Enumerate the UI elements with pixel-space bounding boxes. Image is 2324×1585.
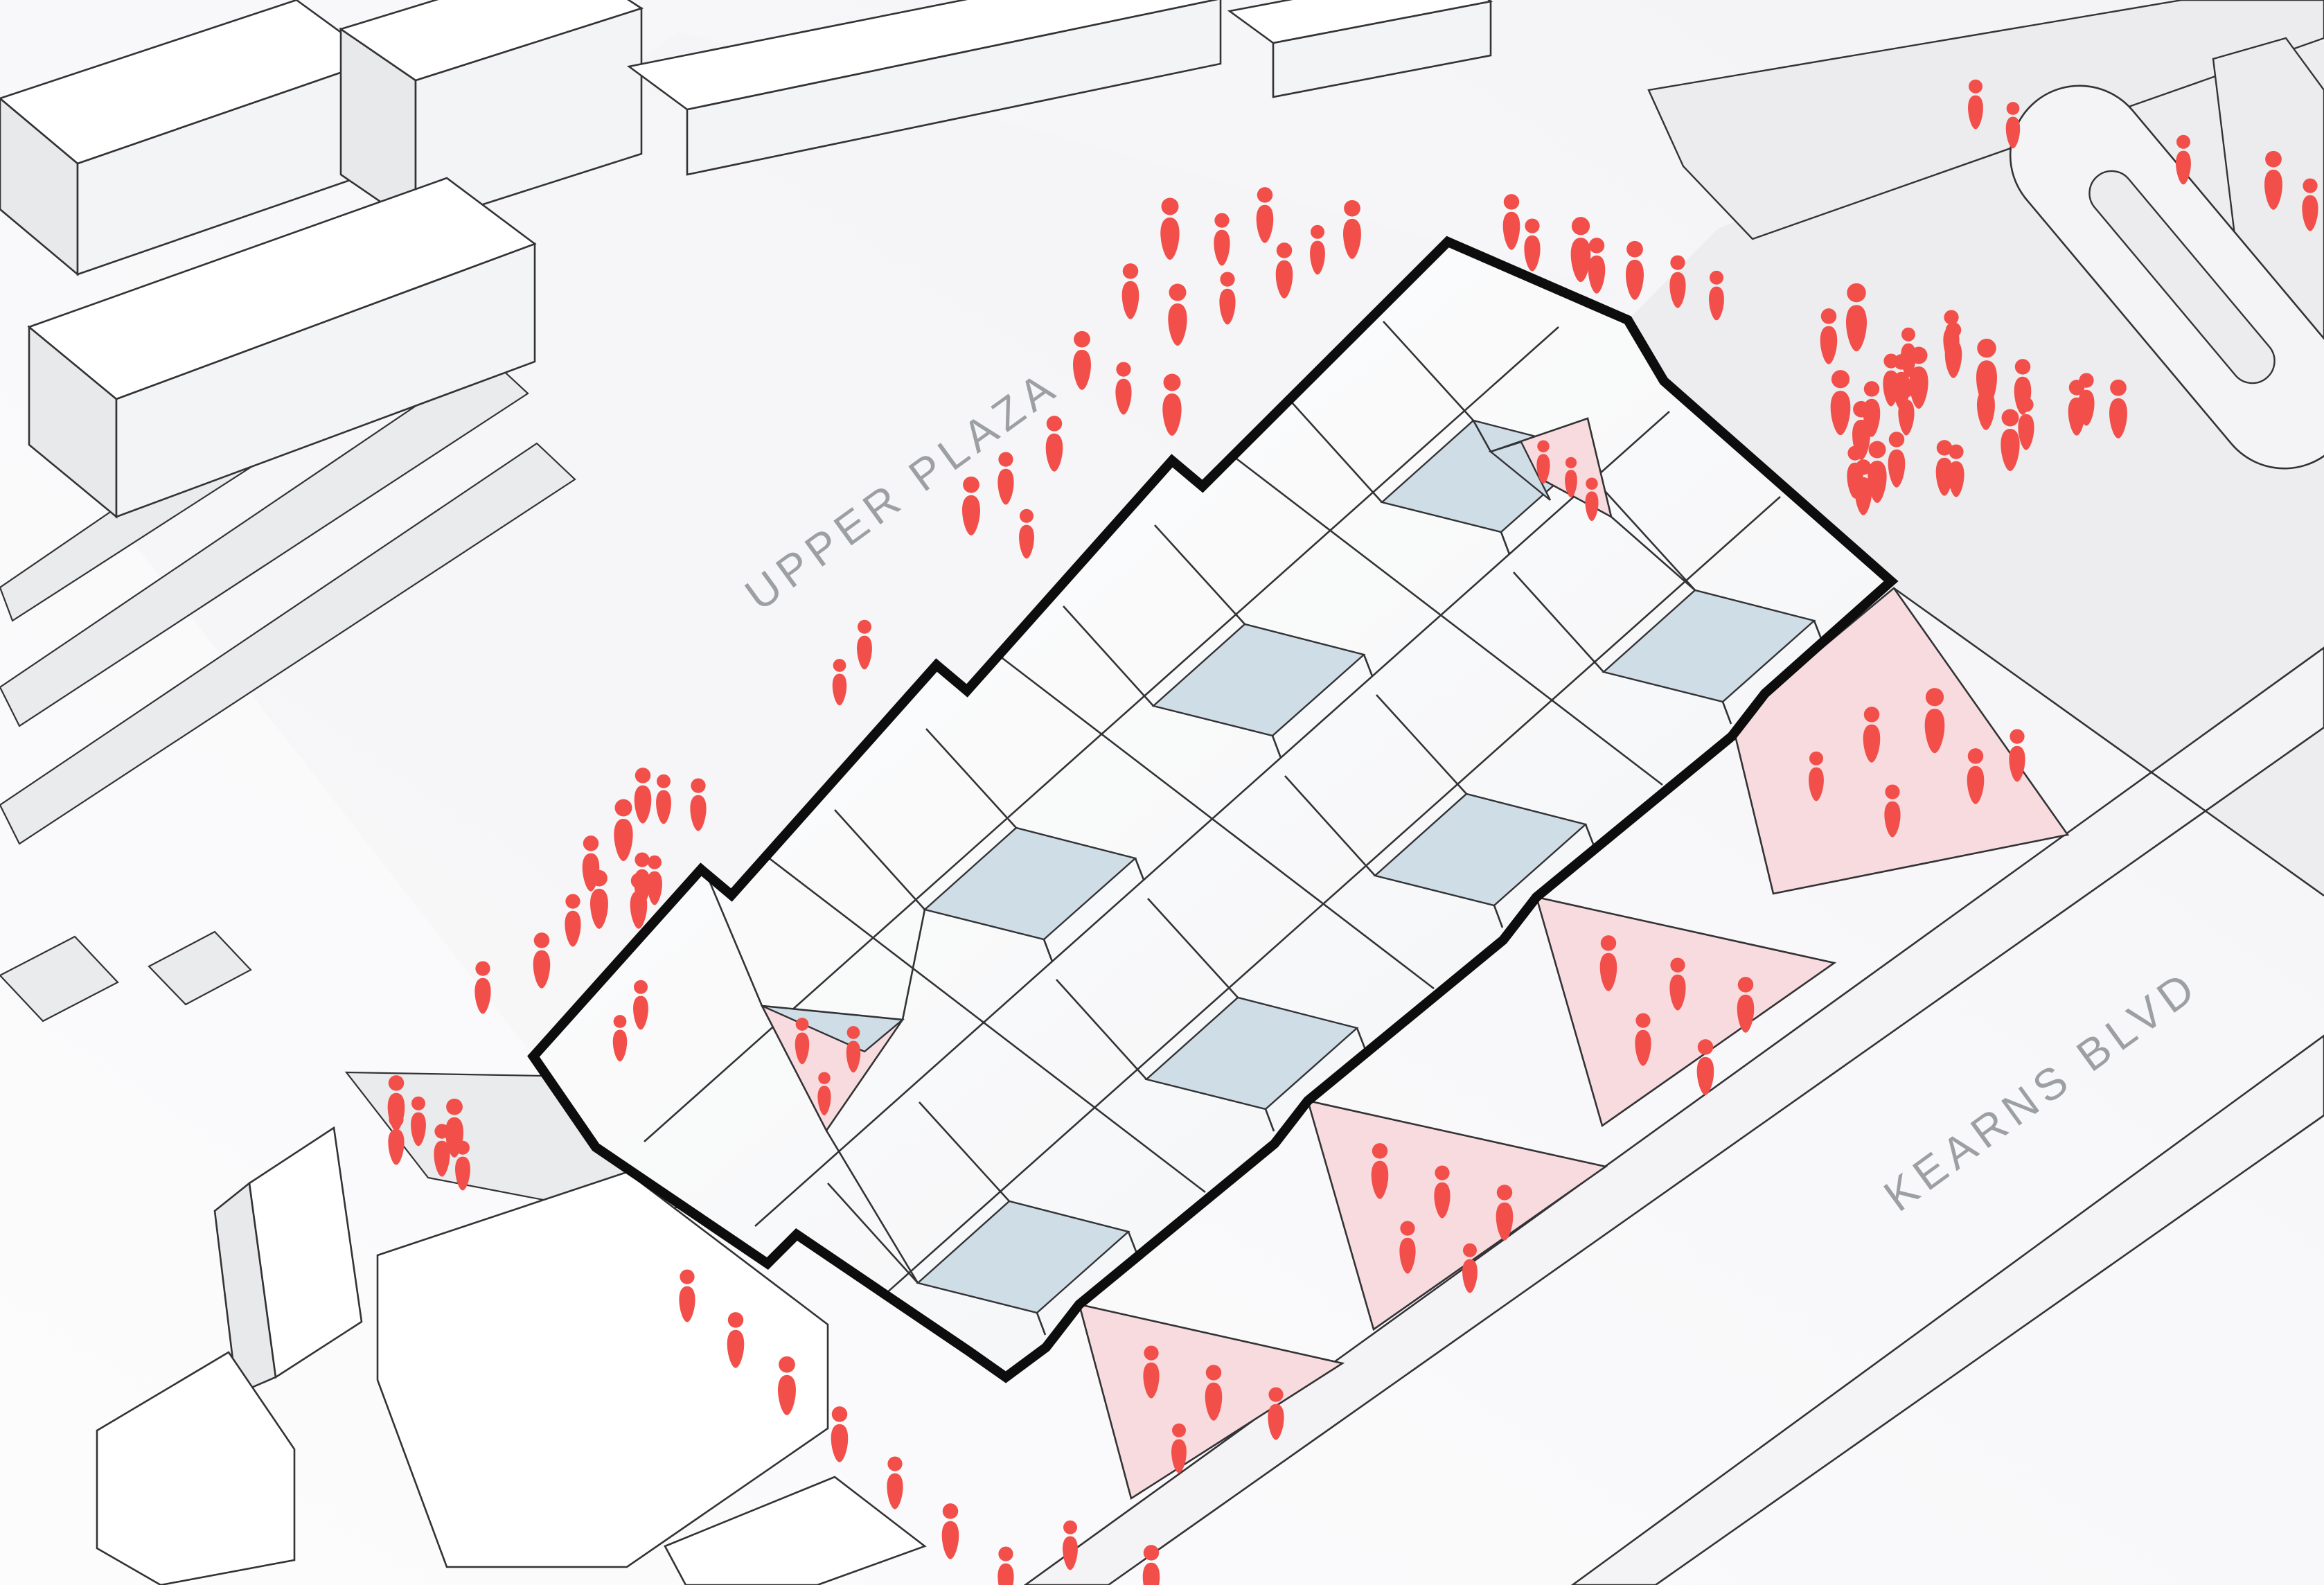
site-diagram: UPPER PLAZA KEARNS BLVD <box>0 0 2324 1585</box>
site-plan-svg: UPPER PLAZA KEARNS BLVD <box>0 0 2324 1585</box>
